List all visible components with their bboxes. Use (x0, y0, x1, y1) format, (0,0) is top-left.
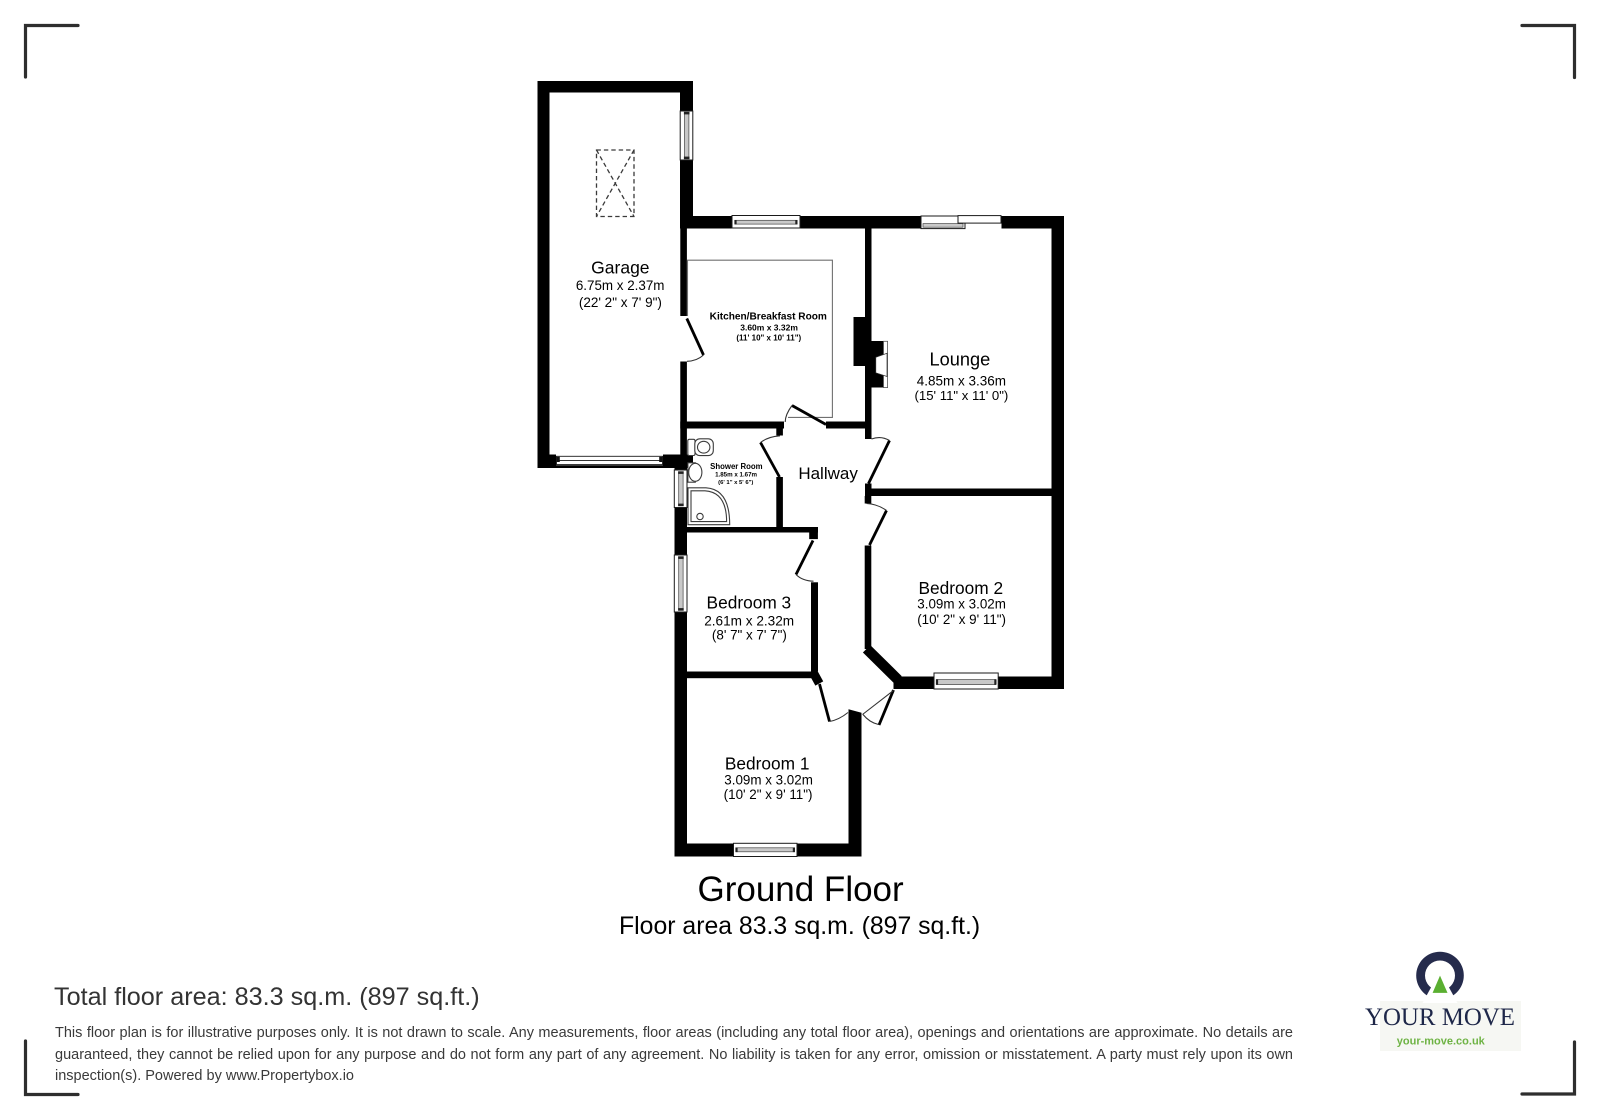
svg-text:Bedroom 2: Bedroom 2 (918, 578, 1003, 598)
svg-text:2.61m x 2.32m: 2.61m x 2.32m (704, 613, 794, 628)
svg-text:YOUR MOVE: YOUR MOVE (1365, 1004, 1515, 1031)
svg-text:3.09m x 3.02m: 3.09m x 3.02m (917, 597, 1006, 612)
svg-text:Hallway: Hallway (798, 464, 858, 483)
svg-text:(10' 2" x 9' 11"): (10' 2" x 9' 11") (724, 787, 813, 802)
svg-text:(6' 1" x 5' 6"): (6' 1" x 5' 6") (718, 480, 753, 486)
svg-text:(15' 11" x 11' 0"): (15' 11" x 11' 0") (914, 388, 1008, 403)
svg-text:Garage: Garage (591, 258, 649, 278)
svg-text:Ground Floor: Ground Floor (697, 870, 904, 909)
svg-text:3.09m x 3.02m: 3.09m x 3.02m (724, 772, 813, 787)
svg-text:(11' 10" x 10' 11"): (11' 10" x 10' 11") (736, 334, 801, 343)
svg-text:your-move.co.uk: your-move.co.uk (1397, 1036, 1486, 1048)
svg-text:6.75m x 2.37m: 6.75m x 2.37m (576, 278, 665, 293)
svg-text:Floor area 83.3 sq.m. (897 sq.: Floor area 83.3 sq.m. (897 sq.ft.) (619, 913, 980, 940)
svg-text:Bedroom 3: Bedroom 3 (707, 593, 792, 613)
svg-text:Kitchen/Breakfast Room: Kitchen/Breakfast Room (710, 312, 827, 323)
svg-text:4.85m x 3.36m: 4.85m x 3.36m (917, 374, 1006, 389)
svg-text:Lounge: Lounge (930, 350, 991, 370)
svg-text:Bedroom 1: Bedroom 1 (725, 753, 810, 773)
svg-text:Shower Room: Shower Room (710, 462, 762, 471)
svg-text:(10' 2" x 9' 11"): (10' 2" x 9' 11") (917, 612, 1006, 627)
svg-text:(8' 7" x 7' 7"): (8' 7" x 7' 7") (712, 628, 787, 643)
svg-text:3.60m x 3.32m: 3.60m x 3.32m (740, 323, 798, 333)
svg-text:(22' 2" x 7' 9"): (22' 2" x 7' 9") (579, 295, 662, 310)
svg-text:1.85m x 1.67m: 1.85m x 1.67m (715, 471, 757, 478)
